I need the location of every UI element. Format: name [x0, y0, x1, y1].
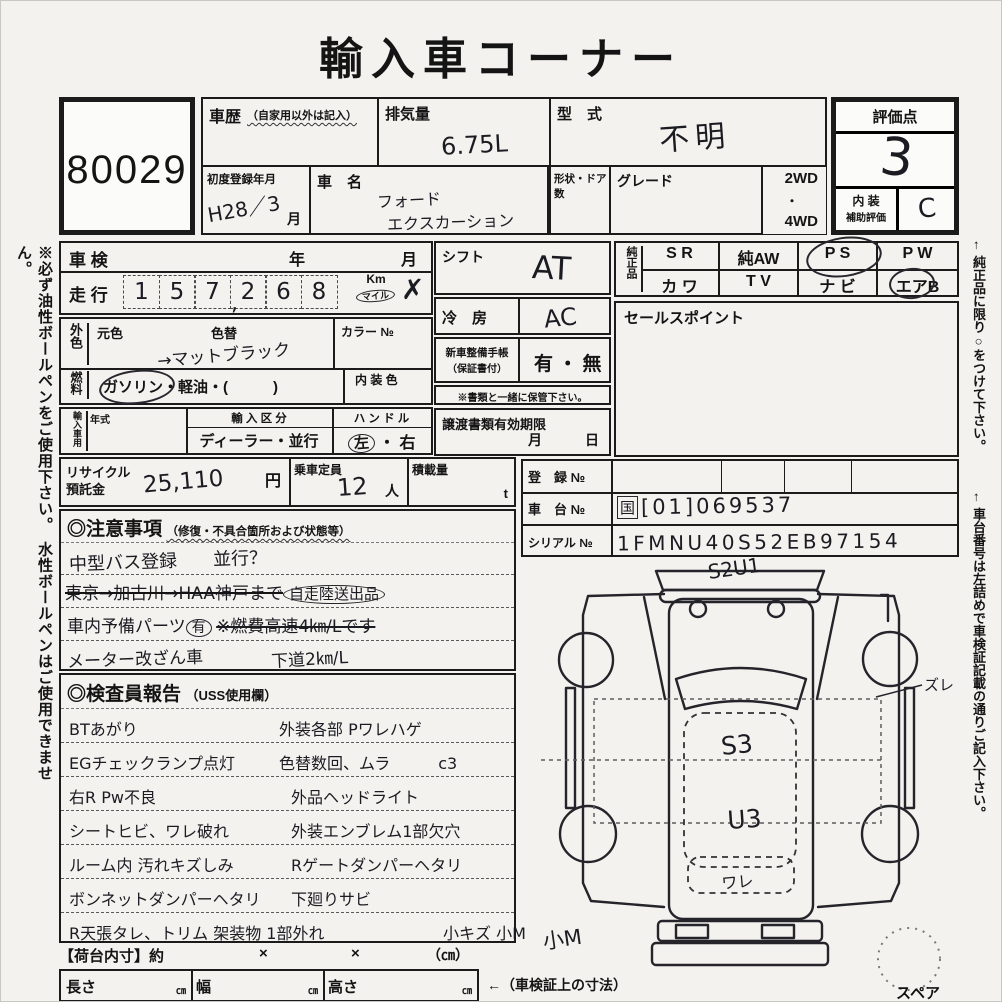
genuine-tv: T V [720, 271, 799, 297]
width-cell: 幅 ㎝ [191, 971, 325, 1000]
year-model-label: 年式 [90, 411, 110, 426]
lot-number-box: 80029 [59, 97, 195, 235]
cooling-label-cell: 冷 房 [436, 299, 520, 333]
registration-divider [721, 461, 722, 492]
interior-score-row: 内 装 補助評価 C [836, 186, 954, 230]
mileage-comma: , [231, 291, 238, 316]
handle-options: 左 ・ 右 [332, 429, 431, 453]
car-name-cell: 車 名 フォード エクスカーション [309, 165, 549, 235]
first-registration-label: 初度登録年月 [207, 171, 276, 187]
length-unit: ㎝ [176, 982, 186, 997]
registration-row: 登 録 № [523, 461, 957, 494]
first-registration-value: H28／3 [205, 187, 282, 228]
cooling-value: AC [543, 302, 579, 333]
caution-line: 車内予備パーツ有 ※燃費高速4㎞/Lです [61, 608, 514, 641]
recycle-deposit-cell: リサイクル 預託金 25,110 円 [61, 459, 291, 505]
mileage-label: 走 行 [69, 281, 108, 306]
exterior-color-label: 外色 [65, 323, 89, 365]
mark-u3: U3 [726, 804, 762, 835]
report-left-2: 右R Pw不良 [69, 784, 156, 808]
score-value: 3 [877, 126, 916, 189]
caution-text-2: 東京→加古川→HAA神戸まで自走陸送出品 [65, 579, 385, 604]
height-cell: 高さ ㎝ [323, 971, 477, 1000]
front-bumper-bar [660, 590, 820, 602]
mileage-row: 走 行 1 5 7 2 6 8 , Km マイル ✗ [61, 271, 431, 313]
recycle-unit: 円 [265, 467, 281, 491]
cautions-header-note: （修復・不具合箇所および状態等） [166, 526, 350, 538]
report-right-1: 色替数回、ムラ c3 [279, 750, 457, 774]
cargo-dims-strip: 【荷台内寸】約 × × （㎝） [59, 945, 516, 967]
mileage-cross-mark: ✗ [401, 273, 424, 306]
mileage-digit: 7 [194, 275, 231, 309]
report-row: ルーム内 汚れキズしみ Rゲートダンパーヘタリ [61, 845, 514, 879]
load-cell: 積載量 t [407, 459, 514, 505]
caution-text-3-circled: 有 [186, 619, 212, 637]
capacity-value: 12 [336, 472, 368, 502]
interior-label: 内 装 [836, 192, 896, 209]
left-a-pillar [644, 597, 665, 699]
right-margin-note-genuine: ← 純正品に限り○をつけて下さい。 [969, 239, 988, 484]
capacity-label: 乗車定員 [294, 461, 342, 478]
serial-divider [611, 526, 613, 555]
tail-light-right [762, 925, 794, 938]
shaken-row: 車 検 年 月 [61, 243, 431, 273]
chassis-no-label: 車 台 № [528, 499, 585, 518]
report-row: シートヒビ、ワレ破れ 外装エンブレム1部欠穴 [61, 811, 514, 845]
mileage-digit: 6 [265, 275, 302, 309]
first-registration-month: 月 [287, 209, 301, 229]
report-header: ◎検査員報告 [67, 684, 181, 705]
mileage-digit: 8 [301, 275, 338, 309]
right-margin-note-chassis: ← 車台番号は左詰めで車検証記載の通りご記入下さい。 [969, 491, 988, 871]
load-label: 積載量 [412, 461, 448, 478]
recycle-label2: 預託金 [66, 479, 105, 498]
cargo-x2: × [351, 945, 360, 962]
height-unit: ㎝ [462, 982, 472, 997]
sales-point-label: セールスポイント [624, 307, 744, 328]
first-registration-cell: 初度登録年月 H28／3 月 [201, 165, 311, 235]
report-right-4: Rゲートダンパーヘタリ [291, 852, 462, 876]
left-margin-note: ※必ず油性ボールペンをご使用下さい。 水性ボールペンはご使用できません。 [13, 245, 55, 805]
interior-color-subcell: 内 装 色 [343, 368, 431, 403]
drive-2wd: 2WD [785, 170, 818, 187]
shift-value: AT [531, 248, 572, 288]
service-book-box: 新車整備手帳 （保証書付） 有 ・ 無 [434, 337, 611, 383]
report-header-note: （USS使用欄） [185, 688, 277, 703]
model-code-value: 不明 [658, 111, 733, 160]
rear-bumper-lower [652, 943, 828, 965]
report-header-row: ◎検査員報告 （USS使用欄） [61, 675, 514, 709]
car-name-label: 車 名 [317, 171, 362, 192]
caution-line: 東京→加古川→HAA神戸まで自走陸送出品 [61, 575, 514, 608]
cargo-x1: × [259, 945, 268, 962]
aux-eval-label: 補助評価 [836, 209, 896, 224]
report-left-3: シートヒビ、ワレ破れ [69, 818, 229, 842]
serial-no-label: シリアル № [528, 534, 593, 551]
interior-score-value: C [916, 193, 937, 225]
interior-color-label: 内 装 色 [355, 371, 398, 388]
shaken-label: 車 検 [69, 246, 108, 271]
service-book-labels: 新車整備手帳 （保証書付） [436, 339, 520, 381]
right-top-bracket [881, 595, 888, 621]
cooling-label: 冷 房 [442, 307, 487, 328]
cautions-header: ◎注意事項 [67, 519, 162, 540]
cooling-box: 冷 房 AC [434, 297, 611, 335]
history-note: （自家用以外は記入） [247, 107, 357, 123]
caution-text-4a: メーター改ざん車 [67, 643, 204, 673]
history-label: 車歴 [209, 103, 241, 127]
front-detail-left [690, 601, 706, 617]
wheel-rear-right [862, 806, 918, 862]
original-color-label: 元色 [97, 323, 123, 342]
genuine-pw: P W [878, 243, 957, 271]
keep-note-strip: ※書類と一緒に保管下さい。 [434, 385, 611, 405]
page-title: 輸入車コーナー [1, 23, 1001, 87]
handle-cell: ハ ン ド ル 左 ・ 右 [332, 409, 431, 453]
serial-value: 1FMNU40S52EB97154 [617, 529, 901, 556]
caution-text-3b: ※燃費高速4㎞/Lです [216, 617, 375, 637]
registration-no-label: 登 録 № [528, 467, 585, 486]
drive-4wd: 4WD [785, 213, 818, 230]
height-label: 高さ [328, 976, 358, 997]
width-label: 幅 [196, 976, 211, 997]
windshield [676, 668, 806, 709]
auction-sheet: 輸入車コーナー ※必ず油性ボールペンをご使用下さい。 水性ボールペンはご使用でき… [0, 0, 1002, 1002]
mark-s3: S3 [720, 729, 755, 761]
mileage-digit-boxes: 1 5 7 2 6 8 [123, 275, 336, 309]
cautions-box: ◎注意事項 （修復・不具合箇所および状態等） 中型バス登録 並行？ 東京→加古川… [59, 509, 516, 671]
transfer-month: 月 [528, 430, 542, 450]
cargo-dims-label: 【荷台内寸】約 [59, 945, 164, 966]
mileage-unit-block: Km マイル [353, 272, 399, 304]
import-class-cell: 輸 入 区 分 ディーラー・並行 [186, 409, 334, 453]
mileage-digit: 5 [159, 275, 196, 309]
shaken-year-label: 年 [289, 246, 305, 270]
report-right-2: 外品ヘッドライト [291, 784, 419, 808]
serial-row: シリアル № 1FMNU40S52EB97154 [523, 526, 957, 555]
vehicle-damage-diagram: S2U1 S3 U3 ワレ ズレ 小M スペア [536, 557, 966, 1002]
report-left-0: BTあがり [69, 716, 138, 740]
handle-dot: ・ [379, 435, 395, 452]
mark-front-s2u1: S2U1 [706, 557, 762, 584]
report-left-1: EGチェックランプ点灯 [69, 750, 235, 774]
repaint-value: →マットブラック [156, 335, 291, 372]
shape-doors-cell: 形状・ドア数 [549, 165, 611, 235]
service-book-label1: 新車整備手帳 [436, 345, 518, 360]
mile-label-circled: マイル [356, 288, 396, 304]
capacity-cell: 乗車定員 12 人 [289, 459, 409, 505]
year-model-cell: 年式 [86, 409, 188, 453]
inspector-report-box: ◎検査員報告 （USS使用欄） BTあがり 外装各部 Pワレハゲ EGチェックラ… [59, 673, 516, 943]
caution-text-3a: 車内予備パーツ [67, 617, 186, 637]
mileage-digit: 1 [123, 275, 160, 309]
report-row: EGチェックランプ点灯 色替数回、ムラ c3 [61, 743, 514, 777]
handle-right: 右 [399, 435, 415, 452]
spare-tire-circle [878, 928, 940, 990]
cautions-header-row: ◎注意事項 （修復・不具合箇所および状態等） [61, 511, 514, 543]
width-unit: ㎝ [308, 982, 318, 997]
lot-number: 80029 [64, 148, 190, 193]
recycle-row: リサイクル 預託金 25,110 円 乗車定員 12 人 積載量 t [59, 457, 516, 507]
service-book-label2: （保証書付） [436, 360, 518, 375]
report-right-5: 下廻りサビ [291, 886, 371, 910]
registration-divider [611, 461, 613, 492]
caution-text-2a: 東京→加古川→HAA神戸まで [65, 584, 283, 604]
right-rocker [905, 688, 914, 808]
registration-box: 登 録 № 車 台 № 国 [01]069537 シリアル № 1FMNU40S… [521, 459, 959, 557]
displacement-cell: 排気量 6.75L [377, 97, 551, 167]
import-box: 輸入車用 年式 輸 入 区 分 ディーラー・並行 ハ ン ド ル 左 ・ 右 [59, 407, 433, 455]
genuine-sr: S R [641, 243, 720, 271]
caution-text-4b: 下道2㎞/L [270, 643, 348, 672]
length-cell: 長さ ㎝ [61, 971, 193, 1000]
drive-dot: ・ [786, 192, 798, 209]
keep-note: ※書類と一緒に保管下さい。 [436, 389, 609, 404]
color-fuel-box: 外色 元色 色替 カラー № →マットブラック 燃料 ガソリン・軽油・( ) 内… [59, 317, 433, 405]
spare-label: スペア [896, 985, 940, 1002]
handle-left-circled: 左 [347, 433, 375, 454]
interior-score-labels: 内 装 補助評価 [836, 189, 899, 230]
report-right-6: 小キズ 小M [443, 920, 526, 944]
fuel-gasoline-circle [97, 366, 176, 408]
report-right-0: 外装各部 Pワレハゲ [279, 716, 422, 740]
shaken-month-label: 月 [401, 246, 417, 270]
chassis-row: 車 台 № 国 [01]069537 [523, 492, 957, 526]
transfer-docs-box: 譲渡書類有効期限 月 日 [434, 408, 611, 456]
chassis-prefix: 国 [617, 496, 638, 519]
report-left-4: ルーム内 汚れキズしみ [69, 852, 234, 876]
shift-label: シフト [442, 247, 484, 267]
shift-box: シフト AT [434, 241, 611, 295]
mark-ware: ワレ [721, 871, 755, 893]
displacement-value: 6.75L [440, 129, 508, 160]
right-a-pillar [817, 597, 838, 699]
report-left-5: ボンネットダンパーヘタリ [69, 886, 261, 910]
transfer-day: 日 [585, 430, 599, 450]
handle-label: ハ ン ド ル [332, 409, 431, 428]
displacement-label: 排気量 [385, 103, 430, 124]
caution-line: 中型バス登録 並行？ [61, 543, 514, 575]
car-name-line2: エクスカーション [387, 207, 515, 235]
drive-type-cell: 2WD ・ 4WD [761, 165, 827, 235]
front-detail-right [768, 601, 784, 617]
import-class-label: 輸 入 区 分 [186, 409, 332, 428]
dims-table: 長さ ㎝ 幅 ㎝ 高さ ㎝ [59, 969, 479, 1002]
color-no-label: カラー № [341, 323, 394, 340]
genuine-aw: 純AW [720, 243, 799, 271]
import-class-value: ディーラー・並行 [186, 430, 332, 451]
shaken-mileage-box: 車 検 年 月 走 行 1 5 7 2 6 8 , Km マイル ✗ [59, 241, 433, 315]
chassis-divider [611, 492, 613, 524]
report-row: 右R Pw不良 外品ヘッドライト [61, 777, 514, 811]
mark-small-dent: 小M [541, 925, 583, 954]
caution-text-1: 中型バス登録 並行？ [69, 544, 268, 577]
length-label: 長さ [66, 976, 96, 997]
fuel-row: 燃料 ガソリン・軽油・( ) 内 装 色 [61, 368, 431, 403]
service-book-options: 有 ・ 無 [534, 349, 602, 376]
left-rocker [566, 688, 575, 808]
load-unit: t [504, 486, 508, 501]
genuine-parts-label: 純正品 [619, 246, 643, 292]
wheel-front-left [559, 633, 613, 687]
model-code-label: 型 式 [557, 103, 602, 124]
caution-text-3: 車内予備パーツ有 ※燃費高速4㎞/Lです [67, 612, 375, 637]
km-label: Km [353, 272, 399, 286]
capacity-unit: 人 [385, 481, 399, 501]
caution-text-2-circled: 自走陸送出品 [283, 585, 385, 604]
wheel-rear-left [560, 806, 616, 862]
wheel-front-right [863, 632, 917, 686]
mark-zure: ズレ [924, 676, 954, 694]
report-right-3: 外装エンブレム1部欠穴 [291, 818, 460, 842]
model-code-cell: 型 式 不明 [549, 97, 827, 167]
report-left-6: R天張タレ、トリム 架装物 1部外れ [69, 920, 324, 944]
color-no-subcell: カラー № [333, 319, 431, 368]
grade-label: グレード [617, 171, 673, 191]
registration-divider [851, 461, 852, 492]
caution-line: メーター改ざん車 下道2㎞/L [61, 641, 514, 673]
report-row: R天張タレ、トリム 架装物 1部外れ 小キズ 小M [61, 913, 514, 946]
grade-cell: グレード [609, 165, 763, 235]
registration-divider [784, 461, 785, 492]
car-name-line1: フォード [376, 185, 441, 212]
tail-light-left [676, 925, 708, 938]
shape-doors-label: 形状・ドア数 [554, 171, 609, 201]
history-cell: 車歴 （自家用以外は記入） [201, 97, 379, 167]
cargo-cm-note: （㎝） [427, 945, 469, 965]
genuine-kawa: カ ワ [641, 271, 720, 297]
fuel-label: 燃料 [65, 371, 89, 399]
score-box: 評価点 3 内 装 補助評価 C [831, 97, 959, 235]
report-row: ボンネットダンパーヘタリ 下廻りサビ [61, 879, 514, 913]
report-row: BTあがり 外装各部 Pワレハゲ [61, 709, 514, 743]
sales-point-box: セールスポイント [614, 301, 959, 457]
import-use-label: 輸入車用 [64, 411, 88, 451]
recycle-value: 25,110 [142, 466, 224, 499]
chassis-value: [01]069537 [641, 493, 795, 520]
exterior-color-row: 外色 元色 色替 カラー № →マットブラック [61, 319, 431, 370]
